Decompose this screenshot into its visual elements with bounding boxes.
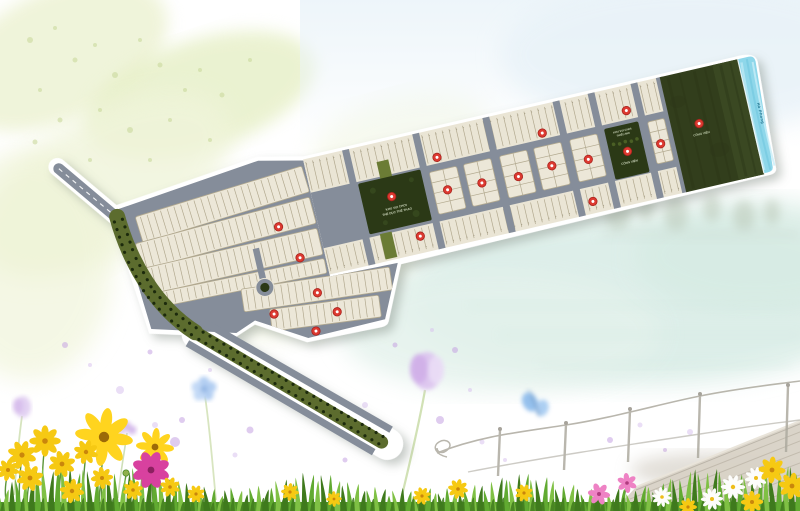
scene: KHU VUI CHƠI THỂ DỤC THỂ THAO KHU VUI CH… bbox=[0, 0, 800, 511]
flower-dy bbox=[29, 425, 60, 456]
flower-dy bbox=[91, 467, 114, 490]
blue-sketch-flower bbox=[192, 377, 217, 501]
flower-bud bbox=[123, 470, 129, 476]
butterfly bbox=[519, 390, 551, 418]
flower-dy bbox=[48, 450, 76, 478]
scene-canvas: KHU VUI CHƠI THỂ DỤC THỂ THAO KHU VUI CH… bbox=[0, 0, 800, 511]
